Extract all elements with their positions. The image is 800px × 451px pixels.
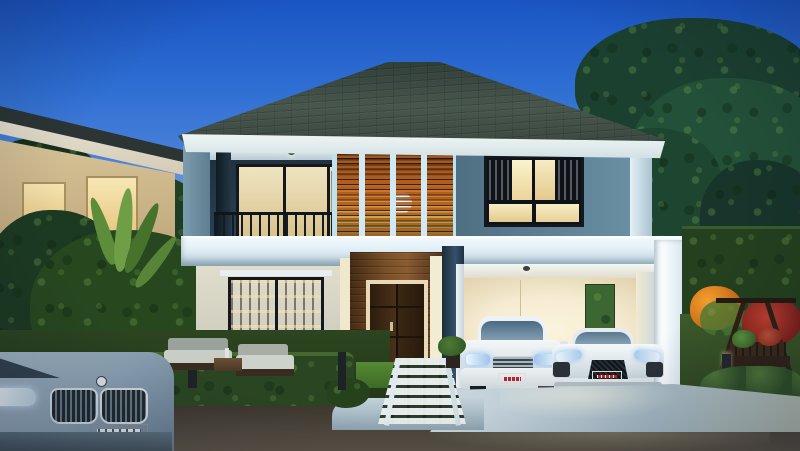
sofa-base: [236, 369, 294, 376]
window-pane: [489, 204, 532, 222]
suv-headlight: [0, 388, 36, 406]
screen-mullion: [359, 143, 365, 239]
headlight: [466, 354, 490, 365]
suv-grille: [100, 388, 148, 424]
window-pane: [512, 160, 532, 200]
door-split: [396, 284, 398, 364]
carport-light-spill: [500, 386, 680, 420]
window-pane: [536, 204, 579, 222]
suv-grille: [50, 388, 98, 424]
window-pane: [535, 160, 555, 200]
license-plate-red: [498, 373, 526, 385]
window-pane: [489, 160, 509, 200]
bollard-light: [338, 352, 346, 390]
suv-bumper: [0, 432, 172, 451]
upper-left-corner-wall: [183, 146, 213, 244]
window-pane: [558, 160, 579, 200]
screen-mullion: [421, 143, 427, 239]
suv-badge: [96, 376, 107, 387]
door-handle: [390, 322, 393, 331]
carport-downlight: [523, 266, 530, 271]
door-groove: [370, 306, 424, 308]
license-plate-red: [592, 371, 622, 382]
swing-top-bar: [716, 298, 796, 303]
scene: [0, 0, 800, 451]
side-intake: [553, 362, 570, 377]
screen-mullion: [390, 143, 396, 239]
upper-window: [484, 155, 584, 227]
coffee-table: [214, 358, 242, 371]
table-bottle: [225, 348, 229, 358]
side-intake: [646, 362, 663, 377]
door-awning: [220, 270, 332, 276]
slat-screen: [332, 140, 458, 242]
